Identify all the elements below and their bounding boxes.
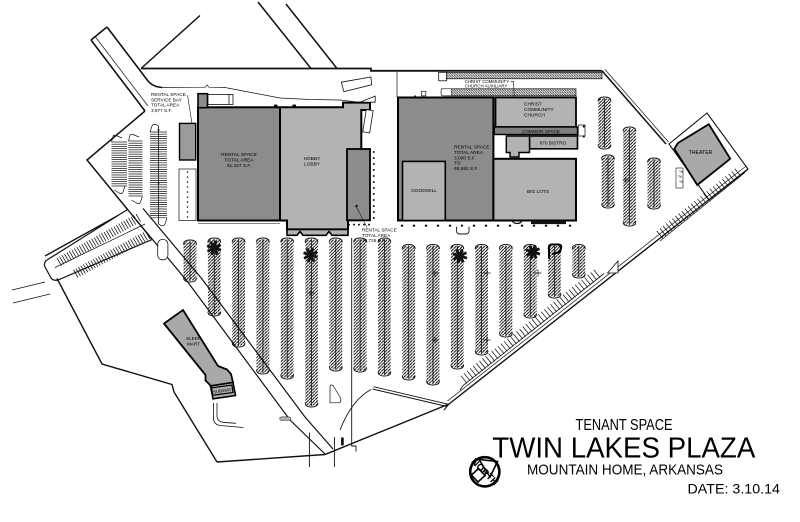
svg-text:CHRIST COMMUNITYCHURCH AUXILIA: CHRIST COMMUNITYCHURCH AUXILIARY (465, 79, 510, 89)
svg-text:TK: TK (679, 170, 684, 174)
svg-text:DATE: 3.10.14: DATE: 3.10.14 (688, 481, 781, 497)
svg-text:HOBBYLOBBY: HOBBYLOBBY (304, 156, 322, 167)
svg-text:GOODWILL: GOODWILL (411, 188, 437, 194)
svg-text:BIG LOTS: BIG LOTS (527, 189, 549, 195)
svg-text:870 BISTRO: 870 BISTRO (540, 141, 567, 146)
svg-text:TK: TK (679, 180, 684, 184)
svg-text:SLEEPMART: SLEEPMART (186, 336, 201, 346)
svg-text:COMMON SPACE: COMMON SPACE (522, 129, 560, 134)
svg-text:TWIN LAKES PLAZA: TWIN LAKES PLAZA (492, 433, 756, 465)
svg-text:TK: TK (678, 175, 683, 179)
svg-text:THEATER: THEATER (689, 150, 713, 156)
svg-text:TENANT SPACE: TENANT SPACE (576, 417, 673, 434)
svg-text:RENTAL SPACESERVICE BAYTOTAL A: RENTAL SPACESERVICE BAYTOTAL AREA3,977 S… (151, 92, 186, 113)
svg-text:MOUNTAIN HOME, ARKANSAS: MOUNTAIN HOME, ARKANSAS (527, 462, 723, 479)
